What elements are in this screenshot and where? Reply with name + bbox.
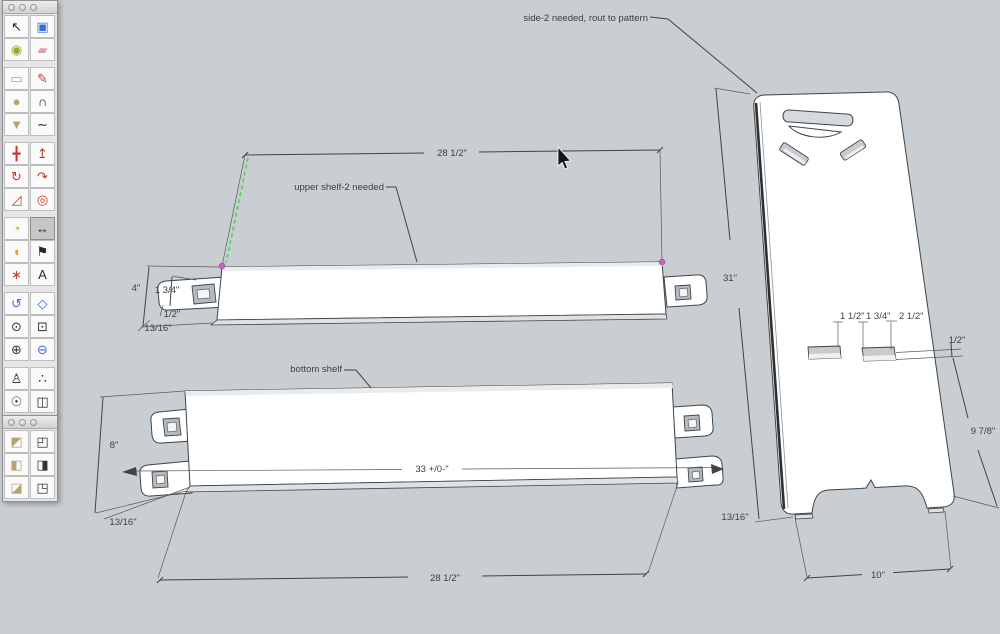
- endpoint-left[interactable]: [219, 263, 225, 269]
- bottom-shelf[interactable]: [140, 383, 723, 496]
- view-top[interactable]: ◰: [30, 430, 55, 453]
- view-right[interactable]: ◨: [30, 453, 55, 476]
- palette-titlebar[interactable]: [3, 1, 57, 14]
- tool-tape-measure[interactable]: ◔: [4, 217, 29, 240]
- upper-shelf[interactable]: [158, 262, 707, 325]
- dim-slot-depth[interactable]: 1/2": [949, 335, 966, 346]
- upper-shelf-face[interactable]: [217, 262, 666, 320]
- tool-push-pull[interactable]: ↥: [30, 142, 55, 165]
- bottom-shelf-label[interactable]: bottom shelf: [290, 364, 371, 388]
- side-panel[interactable]: [754, 92, 955, 519]
- upper-shelf-label-text[interactable]: upper shelf-2 needed: [294, 182, 384, 193]
- minimize-button[interactable]: [19, 4, 26, 11]
- dim-slot3[interactable]: 2 1/2": [899, 311, 924, 322]
- view-back[interactable]: ◪: [4, 476, 29, 499]
- dim-side-lower[interactable]: 9 7/8": [971, 426, 996, 437]
- tool-section-plane[interactable]: ◫: [30, 390, 55, 413]
- dim-bottom-length[interactable]: 28 1/2": [430, 573, 460, 584]
- tool-protractor[interactable]: ◖: [4, 240, 29, 263]
- model-canvas[interactable]: 28 1/2" 4" 1 3/4" 1/2" 13/16" upper shel…: [0, 0, 1000, 634]
- dim-upper-thickness[interactable]: 13/16": [144, 323, 171, 334]
- dim-slot2[interactable]: 1 3/4": [866, 311, 891, 322]
- tool-3d-text[interactable]: A: [30, 263, 55, 286]
- side-panel-label[interactable]: side-2 needed, rout to pattern: [523, 13, 757, 93]
- zoom-button[interactable]: [30, 419, 37, 426]
- endpoint-right[interactable]: [659, 259, 665, 265]
- view-iso[interactable]: ◩: [4, 430, 29, 453]
- mouse-cursor: [558, 147, 571, 169]
- close-button[interactable]: [8, 419, 15, 426]
- dim-side-thickness[interactable]: 13/16": [721, 512, 748, 523]
- minimize-button[interactable]: [19, 419, 26, 426]
- tool-zoom-previous[interactable]: ⊖: [30, 338, 55, 361]
- dim-foot-width[interactable]: 10": [871, 570, 885, 581]
- tool-offset[interactable]: ◎: [30, 188, 55, 211]
- side-panel-label-text[interactable]: side-2 needed, rout to pattern: [523, 13, 648, 24]
- close-button[interactable]: [8, 4, 15, 11]
- tool-line[interactable]: ✎: [30, 67, 55, 90]
- tool-eraser[interactable]: ▰: [30, 38, 55, 61]
- tool-arc[interactable]: ∩: [30, 90, 55, 113]
- inference-line: [226, 158, 248, 263]
- dim-bottom-width[interactable]: 8": [110, 440, 119, 451]
- dim-upper-tab[interactable]: 1 3/4": [155, 285, 180, 296]
- tool-walk[interactable]: ∴: [30, 367, 55, 390]
- view-left[interactable]: ◳: [30, 476, 55, 499]
- view-front[interactable]: ◧: [4, 453, 29, 476]
- dim-bottom-overall[interactable]: 33 +/0-": [415, 464, 448, 475]
- tool-look-around[interactable]: ☉: [4, 390, 29, 413]
- tool-dimension[interactable]: ↔: [30, 217, 55, 240]
- tool-scale[interactable]: ◿: [4, 188, 29, 211]
- tool-axes[interactable]: ∗: [4, 263, 29, 286]
- tool-zoom[interactable]: ⊙: [4, 315, 29, 338]
- tool-orbit[interactable]: ↺: [4, 292, 29, 315]
- dim-bottom-thickness[interactable]: 13/16": [109, 517, 136, 528]
- tool-position-camera[interactable]: ♙: [4, 367, 29, 390]
- upper-shelf-label[interactable]: upper shelf-2 needed: [294, 182, 417, 262]
- main-tool-palette[interactable]: ↖ ▣ ◉ ▰ ▭ ✎ ● ∩ ▼ ∼ ╋ ↥ ↻ ↷ ◿ ◎ ◔ ↔ ◖ ⚑ …: [2, 0, 58, 416]
- zoom-button[interactable]: [30, 4, 37, 11]
- tool-move[interactable]: ╋: [4, 142, 29, 165]
- tool-pan[interactable]: ◇: [30, 292, 55, 315]
- tool-polygon[interactable]: ▼: [4, 113, 29, 136]
- tool-rotate[interactable]: ↻: [4, 165, 29, 188]
- tool-zoom-extents[interactable]: ⊕: [4, 338, 29, 361]
- tool-select[interactable]: ↖: [4, 15, 29, 38]
- tool-text[interactable]: ⚑: [30, 240, 55, 263]
- tool-paint-bucket[interactable]: ◉: [4, 38, 29, 61]
- tool-make-component[interactable]: ▣: [30, 15, 55, 38]
- tool-follow-me[interactable]: ↷: [30, 165, 55, 188]
- dim-upper-half[interactable]: 1/2": [164, 309, 181, 320]
- bottom-shelf-label-text[interactable]: bottom shelf: [290, 364, 342, 375]
- views-palette-titlebar[interactable]: [3, 416, 57, 429]
- dim-upper-length[interactable]: 28 1/2": [437, 148, 467, 159]
- dim-upper-height[interactable]: 4": [132, 283, 141, 294]
- mortise-slot-left: [808, 346, 841, 359]
- tool-freehand[interactable]: ∼: [30, 113, 55, 136]
- tool-rectangle[interactable]: ▭: [4, 67, 29, 90]
- views-palette[interactable]: ◩ ◰ ◧ ◨ ◪ ◳: [2, 415, 58, 502]
- dim-side-height[interactable]: 31": [723, 273, 737, 284]
- tool-zoom-window[interactable]: ⊡: [30, 315, 55, 338]
- tool-circle[interactable]: ●: [4, 90, 29, 113]
- dim-slot1[interactable]: 1 1/2": [840, 311, 865, 322]
